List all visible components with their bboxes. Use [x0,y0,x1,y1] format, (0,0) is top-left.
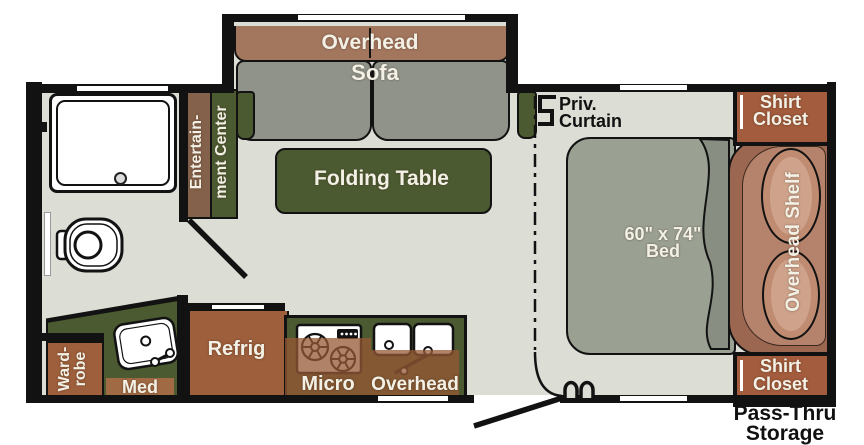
side-cabinet-green [517,91,537,139]
wardrobe [46,341,104,402]
bed [566,137,736,355]
sofa-cushion-divider [369,28,371,58]
bathroom-wall-lower [177,295,188,398]
kitchen-overhead-overlay [371,350,459,397]
closet-door-slit [740,360,743,391]
wardrobe-top-wall [42,333,104,341]
slideout-left-wall [222,14,234,93]
window [620,396,687,401]
pass-thru-storage-label: Pass-Thru Storage [703,404,864,444]
bathroom-wall-upper [179,88,188,222]
sofa-cushion-left [236,60,372,141]
entry-door-opening [474,395,560,403]
pillow [762,250,820,340]
closet-door-slit [740,95,743,129]
pillow-highlight [770,157,812,235]
entertainment-center-shelf [210,89,238,219]
sofa-cushion-right [372,60,510,141]
shower [49,93,177,193]
entertainment-center-cabinet [186,89,212,219]
shower-drain-icon [114,172,127,185]
left-window [44,212,51,276]
shower-pan [56,100,170,186]
shirt-closet-top [733,84,836,146]
window [212,305,264,309]
slideout-window [298,15,465,20]
window [77,86,168,91]
microwave-overlay [285,338,371,397]
right-wall [827,82,836,403]
pillow [761,148,821,244]
folding-table [275,148,492,214]
floorplan: Overhead Sofa Folding Table Entertain- m… [0,0,864,445]
sofa-overhead-cabinet [234,26,510,62]
pillow-highlight [771,259,811,331]
left-wall-stub [40,122,47,132]
sofa-armrest-left [236,91,255,140]
window [620,85,687,90]
slideout-right-wall [506,14,518,93]
refrigerator [188,311,289,398]
window [378,396,448,401]
